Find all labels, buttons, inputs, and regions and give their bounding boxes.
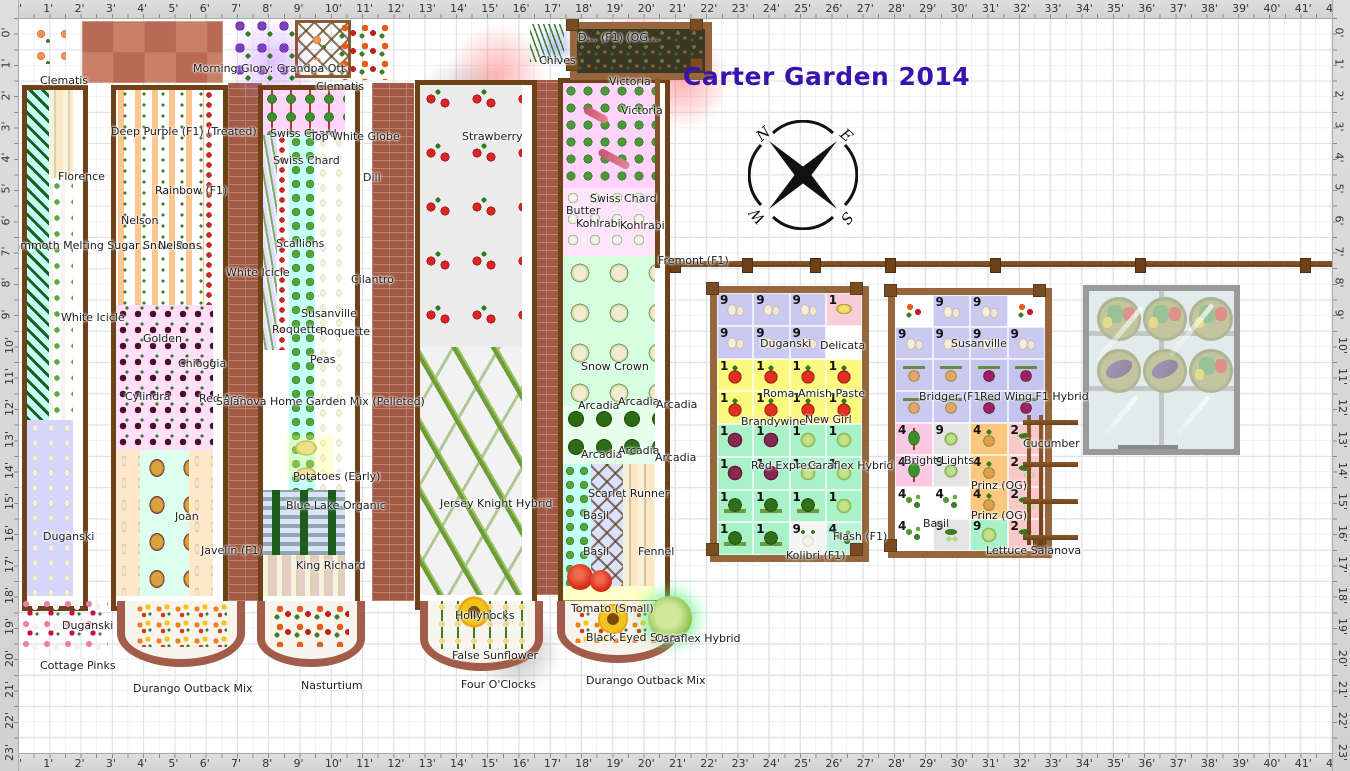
ruler-label: 29' (919, 2, 936, 15)
plant-label: Florence (58, 170, 105, 183)
plant-label: Rainbow (F1) (155, 184, 227, 197)
plant-label: Cilantro (351, 273, 394, 286)
leek-florence[interactable] (49, 90, 73, 178)
ruler-label: 13' (3, 431, 16, 448)
ruler-label: 18' (1336, 587, 1349, 604)
ruler-label: 17' (3, 556, 16, 573)
ruler-label: 10' (325, 757, 342, 770)
plant-label: Cylindra (125, 390, 171, 403)
plant-label: Roquette (272, 323, 322, 336)
plant-count: 9 (1011, 328, 1019, 341)
parsnip-row[interactable] (116, 450, 140, 596)
plant-label: Delicata (820, 339, 865, 352)
sqft-cell-redonion[interactable] (970, 359, 1008, 391)
plant-count: 4 (898, 520, 906, 533)
ruler-label: 22' (1336, 712, 1349, 729)
plant-label: Susanville (951, 337, 1007, 350)
ruler-label: 9' (1333, 309, 1346, 319)
ruler-label: 7' (1333, 246, 1346, 256)
bed-corner-post (884, 284, 897, 297)
ruler-label: 11' (356, 2, 373, 15)
flower-icon (1015, 300, 1037, 322)
plant-count: 9 (793, 523, 801, 536)
ruler-label: 20' (3, 650, 16, 667)
plant-label: Arcadia (656, 398, 697, 411)
ruler-label: 12' (3, 399, 16, 416)
sqft-cell-garlic[interactable]: 9 (933, 295, 971, 327)
ruler-label: 20' (1336, 650, 1349, 667)
rutabaga-joan[interactable] (140, 450, 189, 596)
brick-path[interactable] (228, 83, 262, 601)
plant-count: 9 (756, 294, 764, 307)
beet-rows[interactable] (116, 305, 213, 450)
plant-label: New Girl (805, 413, 852, 426)
sqft-cell-cabbage[interactable]: 1 (826, 424, 862, 457)
sqft-cell-lettuce[interactable]: 9 (933, 423, 971, 455)
plant-count: 9 (936, 296, 944, 309)
asparagus-jersey-knight[interactable] (420, 347, 522, 595)
ruler-label: 10' (3, 337, 16, 354)
ruler-label: 28' (888, 2, 905, 15)
plant-label: Prinz (OG) (971, 479, 1027, 492)
plant-label: Clematis (316, 80, 364, 93)
ruler-label: 40' (1263, 2, 1280, 15)
ruler-label: 13' (419, 757, 436, 770)
plant-count: 1 (829, 425, 837, 438)
ruler-label: 1' (1333, 59, 1346, 69)
sqft-cell-redcab[interactable]: 1 (717, 424, 753, 457)
plant-label: Butter (566, 204, 600, 217)
plant-label: Brandywine (741, 415, 806, 428)
ruler-label: 29' (919, 757, 936, 770)
ruler-right: 0'1'2'3'4'5'6'7'8'9'10'11'12'13'14'15'16… (1332, 0, 1350, 771)
sqft-cell-tomato[interactable]: 1 (717, 359, 753, 392)
sqft-cell-broccoli[interactable]: 1 (790, 490, 826, 523)
ruler-label: 7' (0, 246, 13, 256)
plant-label: Hollyhocks (455, 609, 514, 622)
plant-count: 9 (720, 294, 728, 307)
ruler-label: 33' (1044, 2, 1061, 15)
sqft-cell-garlic[interactable]: 9 (895, 327, 933, 359)
plant-label: Basil (583, 509, 609, 522)
plant-count: 1 (793, 360, 801, 373)
ruler-label: 25' (794, 757, 811, 770)
ruler-label: 39' (1232, 757, 1249, 770)
bed-corner-post (850, 282, 863, 295)
ruler-label: 19' (606, 757, 623, 770)
plant-label: Top White Globe (310, 130, 400, 143)
plant-count: 1 (829, 360, 837, 373)
plant-label: Kolibri (F1) (786, 549, 845, 562)
sqft-cell-cabbage[interactable]: 1 (826, 490, 862, 523)
ruler-label: 32' (1013, 757, 1030, 770)
ruler-label: 34' (1076, 757, 1093, 770)
plant-count: 4 (936, 488, 944, 501)
sqft-cell-broccoli[interactable]: 1 (717, 490, 753, 523)
plant-label: Four O'Clocks (461, 678, 536, 691)
ruler-label: 6' (1333, 215, 1346, 225)
ruler-label: 12' (387, 2, 404, 15)
ruler-label: 19' (3, 618, 16, 635)
plant-label: Roquette (320, 325, 370, 338)
plant-label: Joan (175, 510, 199, 523)
fennel-plants[interactable] (623, 464, 655, 586)
plant-label: Morning Glory: Grandpa Ott (193, 62, 345, 75)
ruler-label: 6' (200, 2, 210, 15)
plant-label: Deep Purple (F1) (Treated) (111, 125, 257, 138)
plant-count: 1 (720, 360, 728, 373)
ruler-label: 0' (0, 27, 13, 37)
redonion-icon (1015, 364, 1037, 386)
sqft-cell-garlic[interactable]: 9 (790, 293, 826, 326)
ruler-label: 2' (1333, 90, 1346, 100)
ruler-label: 14' (450, 757, 467, 770)
ruler-label: 12' (1336, 399, 1349, 416)
ruler-label: 5' (168, 2, 178, 15)
plant-count: 1 (756, 360, 764, 373)
parsnip-row[interactable] (189, 450, 213, 596)
ruler-label: 26' (825, 757, 842, 770)
plant-count: 4 (898, 424, 906, 437)
trellis-rail[interactable] (1023, 462, 1078, 467)
ruler-label: 7' (231, 757, 241, 770)
ruler-label: 30' (951, 757, 968, 770)
ruler-label: 23' (732, 2, 749, 15)
plant-label: White Icicle (226, 266, 290, 279)
ruler-label: 32' (1013, 2, 1030, 15)
ruler-label: 41' (1295, 2, 1312, 15)
plant-label: White Icicle (61, 311, 125, 324)
ruler-label: 10' (325, 2, 342, 15)
plant-label: Nelson (158, 239, 196, 252)
ruler-label: 21' (669, 2, 686, 15)
plant-label: Caraflex Hybrid (808, 459, 894, 472)
ruler-label: 3' (106, 757, 116, 770)
plant-label: Arcadia (618, 444, 659, 457)
ruler-bottom: 0'1'2'3'4'5'6'7'8'9'10'11'12'13'14'15'16… (0, 753, 1350, 771)
plant-count: 9 (973, 296, 981, 309)
bed-corner-post (1033, 284, 1046, 297)
plant-count: 9 (936, 424, 944, 437)
ruler-label: 12' (387, 757, 404, 770)
ruler-top: 0'1'2'3'4'5'6'7'8'9'10'11'12'13'14'15'16… (0, 0, 1350, 19)
marigold-flowers (135, 603, 227, 647)
plant-count: 1 (720, 491, 728, 504)
plant-count: 4 (973, 424, 981, 437)
arc-bed-nasturtium[interactable] (257, 601, 365, 667)
fence-post[interactable] (1135, 258, 1146, 273)
sqft-cell-garlic[interactable]: 9 (717, 326, 753, 359)
plant-label: Nasturtium (301, 679, 363, 692)
trellis-upright[interactable] (1027, 415, 1031, 545)
redonion-icon (978, 364, 1000, 386)
ruler-label: 15' (1336, 493, 1349, 510)
bed-strawberry-asparagus[interactable] (415, 80, 537, 610)
plant-label: Lettuce Salanova (986, 544, 1081, 557)
plant-count: 1 (756, 491, 764, 504)
sqft-cell-delicata[interactable]: 1 (826, 293, 862, 326)
bed-brassicas[interactable] (558, 78, 670, 605)
ruler-label: 5' (1333, 184, 1346, 194)
ruler-label: 4' (1333, 153, 1346, 163)
trellis-rail[interactable] (1023, 499, 1078, 504)
plant-count: 1 (793, 491, 801, 504)
compass-e: E (836, 124, 857, 146)
ruler-label: 27' (857, 757, 874, 770)
plant-label: Swiss Chard (273, 154, 340, 167)
ruler-label: 11' (3, 368, 16, 385)
garden-plan-area[interactable]: 9991999111111111111111111111194 99999949… (18, 18, 1332, 753)
ruler-label: 23' (732, 757, 749, 770)
ruler-label: 35' (1107, 757, 1124, 770)
compass-n: N (752, 122, 775, 145)
plant-label: Snow Crown (581, 360, 649, 373)
ruler-label: 0' (1333, 27, 1346, 37)
bed-corner-post (850, 543, 863, 556)
ruler-label: 18' (575, 2, 592, 15)
ruler-label: 14' (3, 462, 16, 479)
plant-label: Amish Paste (798, 387, 865, 400)
ruler-label: 37' (1170, 2, 1187, 15)
sqft-cell-flower[interactable] (895, 295, 933, 327)
ruler-label: 17' (544, 757, 561, 770)
fern-plants[interactable] (27, 90, 49, 420)
plant-label: False Sunflower (452, 649, 538, 662)
sqft-cell-redcab[interactable]: 1 (717, 457, 753, 490)
sqft-cell-basil[interactable]: 4 (895, 487, 933, 519)
plant-label: Arcadia (655, 451, 696, 464)
onion-icon (940, 364, 962, 386)
ruler-label: 22' (700, 2, 717, 15)
ruler-label: 13' (1336, 431, 1349, 448)
compass-w: W (748, 203, 769, 228)
garden-planner-canvas: { "title": "Carter Garden 2014", "rulers… (0, 0, 1350, 771)
ruler-label: 7' (231, 2, 241, 15)
plant-label: Prinz (OG) (971, 509, 1027, 522)
brick-path[interactable] (372, 83, 414, 601)
plant-label: Basil (923, 517, 949, 530)
ruler-label: 15' (481, 2, 498, 15)
carrot-rows[interactable] (116, 90, 204, 305)
fence-post[interactable] (885, 258, 896, 273)
ruler-label: 31' (982, 757, 999, 770)
ruler-label: 37' (1170, 757, 1187, 770)
rhubarb-victoria[interactable] (563, 83, 655, 188)
ruler-label: 36' (1138, 757, 1155, 770)
fence-post[interactable] (1300, 258, 1311, 273)
onion-icon (903, 364, 925, 386)
ruler-label: 26' (825, 2, 842, 15)
sqft-cell-redcab[interactable]: 1 (753, 424, 789, 457)
tomato-icon (590, 570, 612, 592)
ruler-label: 16' (1336, 525, 1349, 542)
ruler-label: 23' (3, 744, 16, 761)
ruler-label: 14' (1336, 462, 1349, 479)
ruler-label: 8' (262, 757, 272, 770)
tomato-icon (567, 564, 593, 590)
plant-label: D… (F1) (OG… (578, 31, 659, 44)
plant-label: Basil (583, 545, 609, 558)
plant-count: 1 (829, 491, 837, 504)
radish-row[interactable] (204, 90, 213, 305)
plant-count: 1 (829, 294, 837, 307)
plant-label: Scarlet Runner (588, 487, 669, 500)
sqft-cell-broccoli[interactable]: 1 (753, 490, 789, 523)
nasturtium-cluster-icon[interactable] (338, 22, 390, 80)
plant-label: Kohlrabi (620, 219, 665, 232)
sqft-cell-cabbage[interactable]: 1 (790, 424, 826, 457)
fence-post[interactable] (742, 258, 753, 273)
plant-label: Bridger (F1) (919, 390, 985, 403)
plant-label: Victoria (621, 104, 663, 117)
plant-label: Fennel (638, 545, 674, 558)
ruler-label: 9' (0, 309, 13, 319)
plant-label: Cottage Pinks (40, 659, 116, 672)
cold-frame-handle[interactable] (1118, 445, 1178, 449)
clematis-flower-icon[interactable] (308, 32, 334, 60)
fence-rail[interactable] (676, 261, 1332, 267)
ruler-label: 8' (262, 2, 272, 15)
ruler-label: 1' (43, 2, 53, 15)
plant-label: Javelin (F1) (201, 544, 263, 557)
ruler-label: 14' (450, 2, 467, 15)
ruler-label: 9' (294, 2, 304, 15)
sqft-cell-garlic[interactable]: 9 (1008, 327, 1046, 359)
plant-count: 1 (720, 425, 728, 438)
ruler-label: 20' (638, 2, 655, 15)
clematis-flower-icon[interactable] (32, 26, 66, 64)
ruler-label: 1' (0, 59, 13, 69)
nasturtium-flowers (273, 603, 349, 647)
plant-label: Peas (310, 353, 335, 366)
sqft-cell-garlic[interactable]: 9 (717, 293, 753, 326)
ruler-label: 3' (1333, 121, 1346, 131)
ruler-label: 6' (0, 215, 13, 225)
plant-label: Dill (363, 171, 381, 184)
ruler-label: 3' (0, 121, 13, 131)
ruler-label: 16' (513, 757, 530, 770)
compass-s: S (837, 208, 857, 227)
plant-label: Arcadia (578, 399, 619, 412)
ruler-label: 2' (75, 2, 85, 15)
ruler-label: 5' (168, 757, 178, 770)
sqft-cell-chard[interactable]: 4 (895, 423, 933, 455)
plant-label: Golden (143, 332, 182, 345)
scallion-row[interactable] (263, 135, 277, 350)
plant-label: Susanville (301, 307, 357, 320)
plant-label: Red Wing F1 Hybrid (980, 390, 1089, 403)
plant-label: Durango Outback Mix (133, 682, 253, 695)
ruler-label: 23' (1336, 744, 1349, 761)
sqft-cell-turnip[interactable]: 4 (970, 423, 1008, 455)
bed-corner-post (706, 282, 719, 295)
arc-bed-durango[interactable] (117, 601, 245, 667)
ruler-label: 13' (419, 2, 436, 15)
plant-count: 1 (756, 523, 764, 536)
plant-label: Blue Lake Organic (286, 499, 386, 512)
plant-count: 4 (973, 456, 981, 469)
ruler-label: 35' (1107, 2, 1124, 15)
ruler-label: 10' (1336, 337, 1349, 354)
flower-icon (903, 300, 925, 322)
ruler-label: 16' (513, 2, 530, 15)
trellis-upright[interactable] (1039, 415, 1043, 545)
sqft-cell-onion[interactable] (895, 359, 933, 391)
ruler-label: 8' (0, 278, 13, 288)
plant-label: Strawberry (462, 130, 523, 143)
ruler-label: 8' (1333, 278, 1346, 288)
strawberry-plants[interactable] (420, 85, 522, 347)
sqft-cell-basil[interactable]: 4 (933, 487, 971, 519)
sqft-cell-broccoli[interactable]: 1 (717, 522, 753, 555)
ruler-label: 38' (1201, 2, 1218, 15)
ruler-label: 28' (888, 757, 905, 770)
sqft-cell-broccoli[interactable]: 1 (753, 522, 789, 555)
ruler-label: 27' (857, 2, 874, 15)
ruler-label: 24' (763, 2, 780, 15)
plant-label: Cucumber (1023, 437, 1080, 450)
cauliflower-snow-crown[interactable] (563, 256, 655, 406)
sqft-cell-flower[interactable] (1008, 295, 1046, 327)
plant-label: Arcadia (581, 448, 622, 461)
ruler-left: 0'1'2'3'4'5'6'7'8'9'10'11'12'13'14'15'16… (0, 0, 19, 771)
scarlet-runner-trellis[interactable] (591, 464, 623, 586)
plant-label: Duganski (43, 530, 94, 543)
plant-count: 2 (1011, 424, 1019, 437)
trellis-rail[interactable] (1023, 420, 1078, 425)
plant-label: Tomato (Small) (571, 602, 654, 615)
ruler-label: 22' (700, 757, 717, 770)
ruler-label: 4' (0, 153, 13, 163)
fence-post[interactable] (990, 258, 1001, 273)
plant-label: Arcadia (618, 395, 659, 408)
ruler-label: 17' (544, 2, 561, 15)
ruler-label: 1' (43, 757, 53, 770)
plant-label: Chioggia (178, 357, 226, 370)
ruler-label: 2' (75, 757, 85, 770)
bed-carrots-beets[interactable] (111, 85, 228, 611)
sqft-cell-garlic[interactable]: 9 (753, 293, 789, 326)
sqft-cell-onion[interactable] (933, 359, 971, 391)
compass-rose[interactable]: N E W S (748, 120, 858, 230)
garlic-duganski[interactable] (27, 420, 73, 596)
ruler-label: 21' (1336, 681, 1349, 698)
ruler-label: 22' (3, 712, 16, 729)
plant-count: 9 (936, 328, 944, 341)
plant-label: Bright Lights (904, 454, 974, 467)
plant-label: Kohlrabi (576, 217, 621, 230)
sqft-cell-redonion[interactable] (1008, 359, 1046, 391)
plant-label: Duganski (760, 337, 811, 350)
ruler-label: 4' (137, 757, 147, 770)
cold-frame[interactable] (1083, 285, 1240, 455)
plant-count: 1 (720, 523, 728, 536)
ruler-label: 34' (1076, 2, 1093, 15)
ruler-label: 20' (638, 757, 655, 770)
plan-title[interactable]: Carter Garden 2014 (683, 62, 970, 91)
plant-label: Chives (539, 54, 576, 67)
ruler-label: 6' (200, 757, 210, 770)
sqft-cell-garlic[interactable]: 9 (970, 295, 1008, 327)
trellis-rail[interactable] (1023, 535, 1078, 540)
ruler-label: 21' (3, 681, 16, 698)
plant-label: Caraflex Hybrid (655, 632, 741, 645)
plant-count: 4 (898, 488, 906, 501)
ruler-label: 5' (0, 184, 13, 194)
fence-post[interactable] (810, 258, 821, 273)
radish-white-icicle[interactable] (49, 178, 73, 420)
ruler-label: 36' (1138, 2, 1155, 15)
